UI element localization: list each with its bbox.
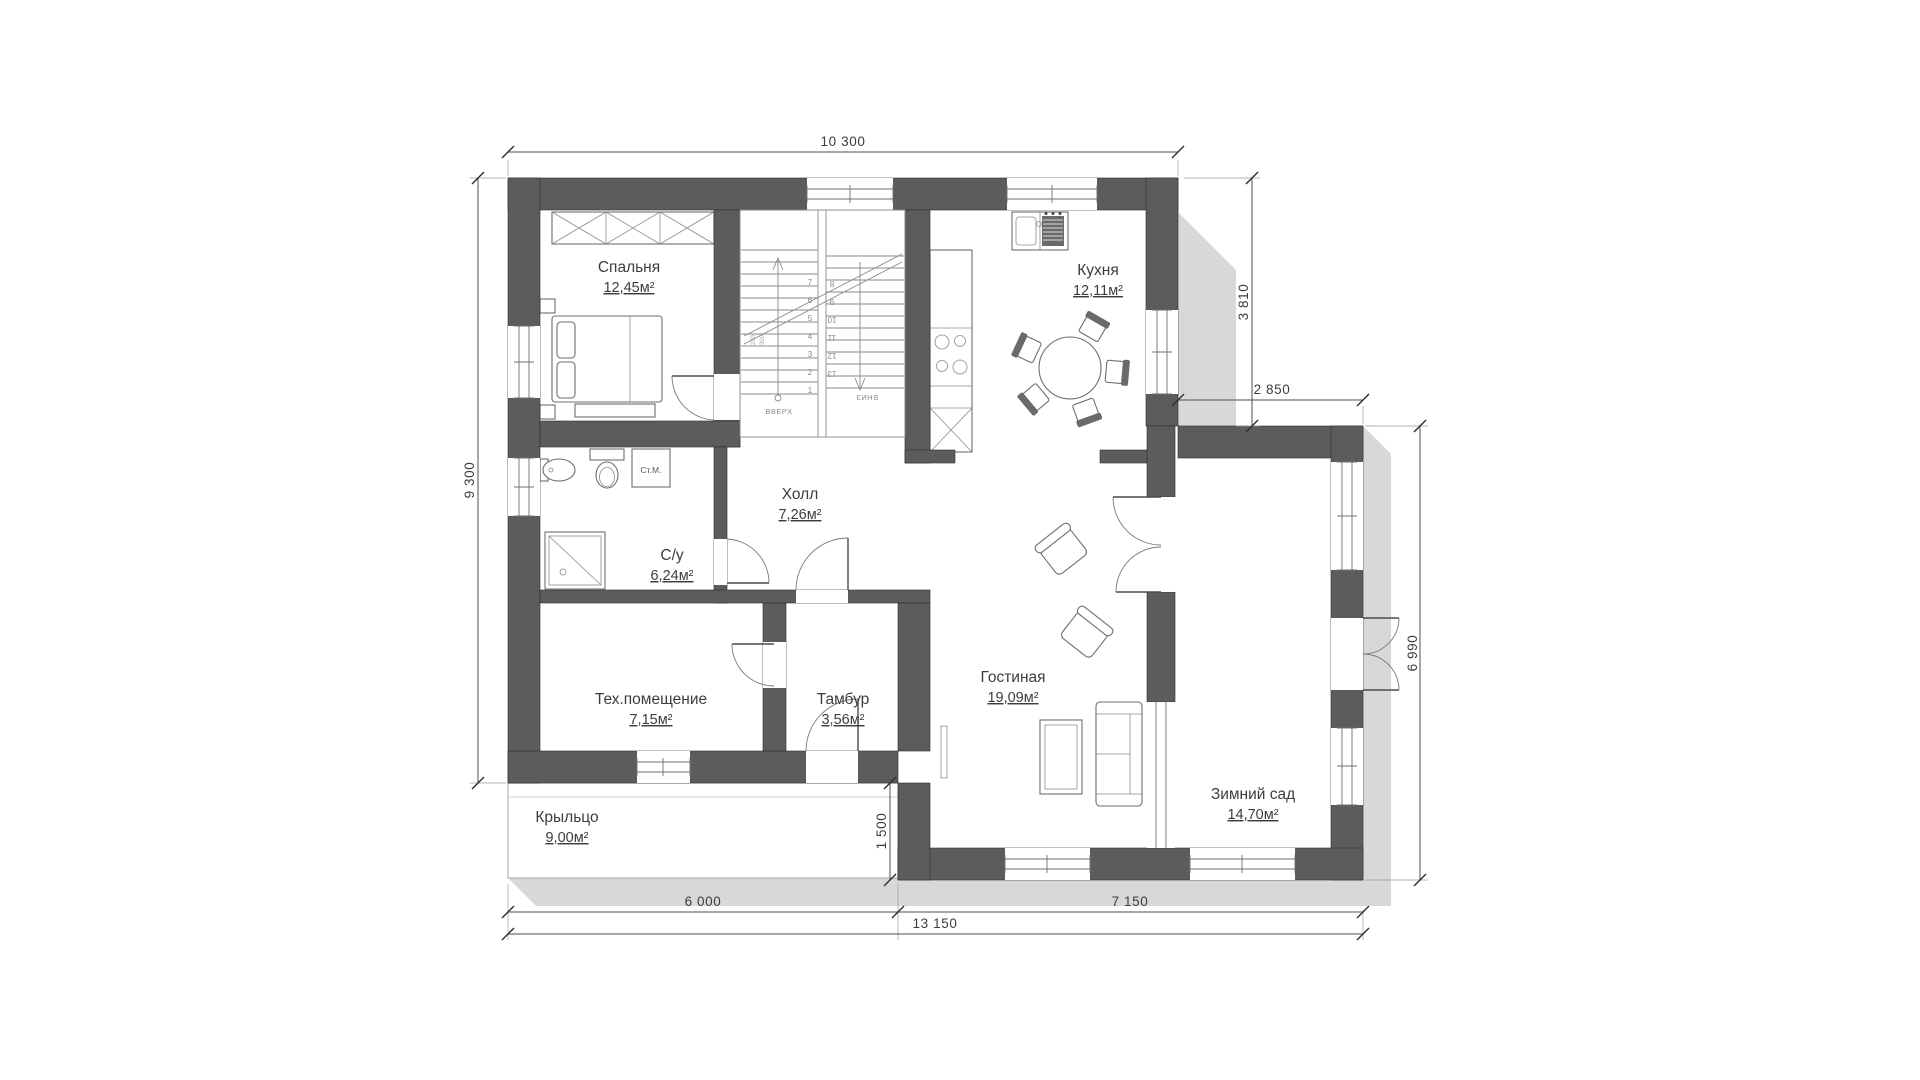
dim-left: 9 300 <box>462 462 477 499</box>
door-hall-tambour <box>796 538 848 603</box>
room-label-tech-room: Тех.помещение 7,15м² <box>595 691 707 728</box>
room-name: Тамбур <box>817 691 870 708</box>
window <box>508 458 540 516</box>
window <box>1331 728 1363 805</box>
armchair <box>1058 605 1114 661</box>
floor-plan: Ст.М. <box>0 0 1920 1080</box>
shower <box>545 532 605 589</box>
room-area: 9,00м² <box>545 830 588 846</box>
stair-step-number: 12 <box>827 351 836 360</box>
radiator <box>941 726 947 778</box>
stair-step-number: 7 <box>808 278 813 287</box>
dining-chair <box>1011 332 1043 365</box>
room-area: 12,11м² <box>1073 283 1123 299</box>
toilet <box>590 449 624 488</box>
room-area: 12,45м² <box>603 280 654 296</box>
room-label-living-room: Гостиная 19,09м² <box>980 669 1045 706</box>
window <box>1005 848 1090 880</box>
room-area: 7,15м² <box>629 712 672 728</box>
dim-top: 10 300 <box>821 134 866 149</box>
bed-bench <box>575 404 655 417</box>
dim-bottom-total: 13 150 <box>913 916 958 931</box>
room-name: Холл <box>782 486 819 503</box>
room-label-bedroom: Спальня 12,45м² <box>598 259 660 296</box>
room-name: Крыльцо <box>535 809 598 826</box>
room-name: Гостиная <box>980 669 1045 686</box>
dim-porch-offset: 1 500 <box>874 813 889 850</box>
armchair <box>1034 522 1090 578</box>
dining-table <box>1039 337 1101 399</box>
stair-step-number: 6 <box>808 296 813 305</box>
stair-step-number: 9 <box>829 297 834 306</box>
room-label-kitchen: Кухня 12,11м² <box>1073 262 1123 299</box>
dim-wing-right: 6 990 <box>1405 635 1420 672</box>
room-label-tambour: Тамбур 3,56м² <box>817 691 870 728</box>
room-area: 3,56м² <box>821 712 864 728</box>
stair-step-number: 8 <box>829 279 834 288</box>
room-label-bathroom: С/у 6,24м² <box>650 547 693 584</box>
sofa <box>1096 702 1142 806</box>
washbasin <box>540 459 575 481</box>
kitchen-sink <box>1012 212 1068 250</box>
stair-step-number: 11 <box>827 333 836 342</box>
dim-bottom-right: 7 150 <box>1112 894 1149 909</box>
door-winter-garden <box>1113 497 1175 592</box>
wardrobe <box>552 212 714 244</box>
window <box>807 178 893 210</box>
door-bathroom <box>714 539 769 585</box>
stairs-riser-note: 290 <box>751 334 757 345</box>
room-name: Зимний сад <box>1211 786 1295 803</box>
washing-machine: Ст.М. <box>632 449 670 487</box>
room-area: 14,70м² <box>1227 807 1278 823</box>
nightstand <box>540 299 555 313</box>
dining-chair <box>1077 310 1111 343</box>
room-name: С/у <box>660 547 684 564</box>
window <box>1190 848 1295 880</box>
dining-chair <box>1105 358 1130 386</box>
stairs-down-label: ВНИЗ <box>856 393 878 402</box>
room-name: Кухня <box>1077 262 1118 279</box>
stair-step-number: 2 <box>808 368 813 377</box>
room-label-winter-garden: Зимний сад 14,70м² <box>1211 786 1295 823</box>
room-area: 19,09м² <box>987 690 1038 706</box>
dining-chair <box>1070 397 1102 428</box>
room-name: Тех.помещение <box>595 691 707 708</box>
window <box>1146 310 1178 394</box>
window <box>508 326 540 398</box>
door-tech-room <box>732 642 786 688</box>
stair-step-number: 1 <box>808 386 813 395</box>
stair-step-number: 13 <box>827 369 836 378</box>
stair-step-number: 3 <box>808 350 813 359</box>
coffee-table <box>1040 720 1082 794</box>
dim-bottom-left: 6 000 <box>685 894 722 909</box>
staircase: 1 2 3 4 5 6 7 8 9 10 11 12 13 ВВЕРХ ВНИЗ… <box>740 210 905 437</box>
window <box>637 751 690 783</box>
dim-wing-top: 2 850 <box>1254 382 1291 397</box>
room-area: 6,24м² <box>650 568 693 584</box>
stair-step-number: 10 <box>827 315 836 324</box>
room-label-hall: Холл 7,26м² <box>778 486 821 523</box>
glazed-partition <box>1147 702 1175 848</box>
stair-step-number: 4 <box>808 332 813 341</box>
dim-kitchen-right: 3 810 <box>1236 284 1251 321</box>
room-area: 7,26м² <box>778 507 821 523</box>
stairs-tread-note: 300 <box>760 334 766 345</box>
window <box>1331 462 1363 570</box>
washing-machine-label: Ст.М. <box>641 465 662 475</box>
kitchen-counter <box>930 250 972 452</box>
stair-step-number: 5 <box>808 314 813 323</box>
window <box>1007 178 1097 210</box>
nightstand <box>540 405 555 419</box>
room-name: Спальня <box>598 259 660 276</box>
door-bedroom <box>672 374 740 420</box>
bed <box>552 316 662 402</box>
stairs-up-label: ВВЕРХ <box>765 407 792 416</box>
